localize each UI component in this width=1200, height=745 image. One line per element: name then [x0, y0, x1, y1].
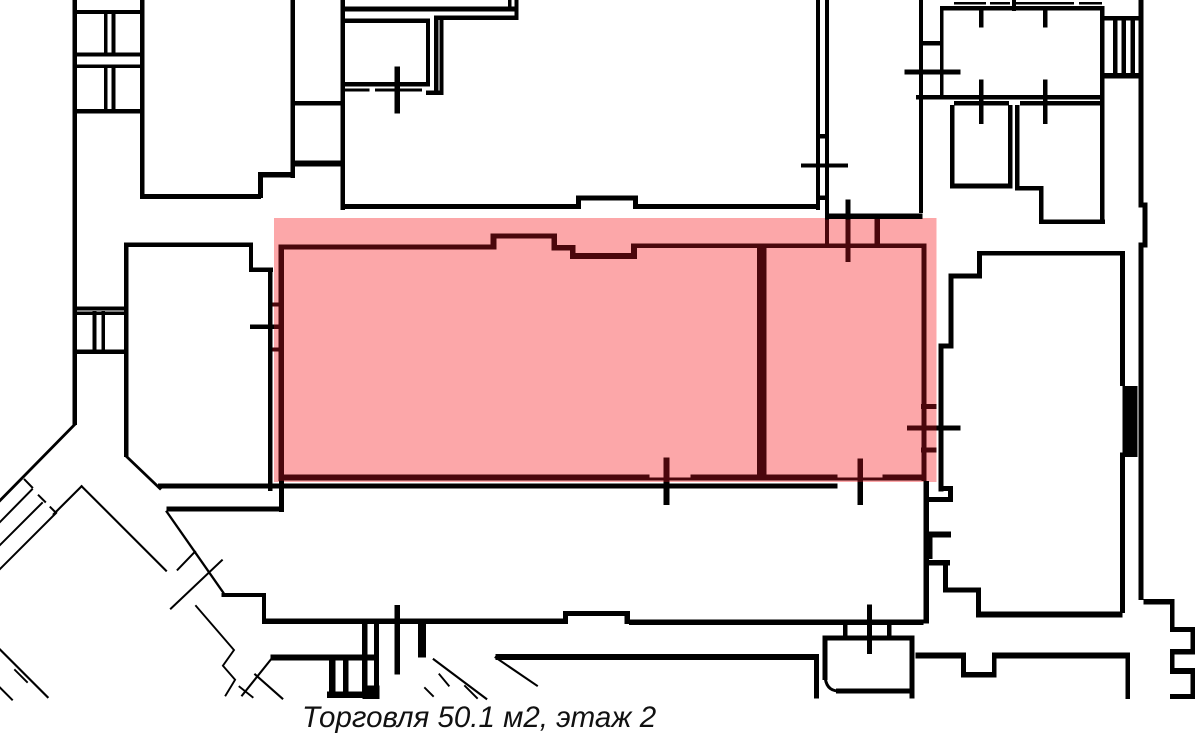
svg-text:Торговля 50.1 м2, этаж 2: Торговля 50.1 м2, этаж 2 — [302, 701, 656, 734]
